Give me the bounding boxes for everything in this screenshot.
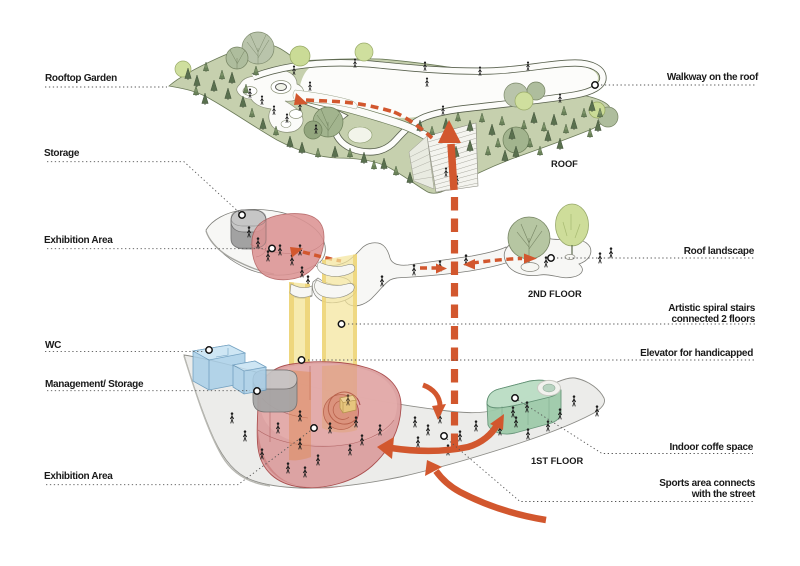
svg-text:Sports area connects: Sports area connects: [659, 478, 755, 489]
svg-text:Storage: Storage: [44, 148, 80, 159]
svg-text:Exhibition Area: Exhibition Area: [44, 235, 113, 246]
svg-text:Indoor coffe space: Indoor coffe space: [669, 442, 753, 453]
svg-text:Artistic spiral stairs: Artistic spiral stairs: [668, 303, 756, 314]
svg-text:Management/ Storage: Management/ Storage: [45, 379, 144, 390]
svg-text:connected 2 floors: connected 2 floors: [671, 314, 755, 325]
svg-text:WC: WC: [45, 340, 61, 351]
svg-text:Walkway on the roof: Walkway on the roof: [667, 72, 759, 83]
svg-text:1ST FLOOR: 1ST FLOOR: [531, 456, 583, 466]
svg-text:2ND FLOOR: 2ND FLOOR: [528, 289, 582, 299]
svg-text:ROOF: ROOF: [551, 159, 578, 169]
svg-text:Rooftop Garden: Rooftop Garden: [45, 73, 117, 84]
svg-text:with the street: with the street: [691, 489, 756, 500]
svg-text:Exhibition Area: Exhibition Area: [44, 471, 113, 482]
svg-text:Elevator for handicapped: Elevator for handicapped: [640, 348, 753, 359]
svg-text:Roof landscape: Roof landscape: [684, 246, 755, 257]
